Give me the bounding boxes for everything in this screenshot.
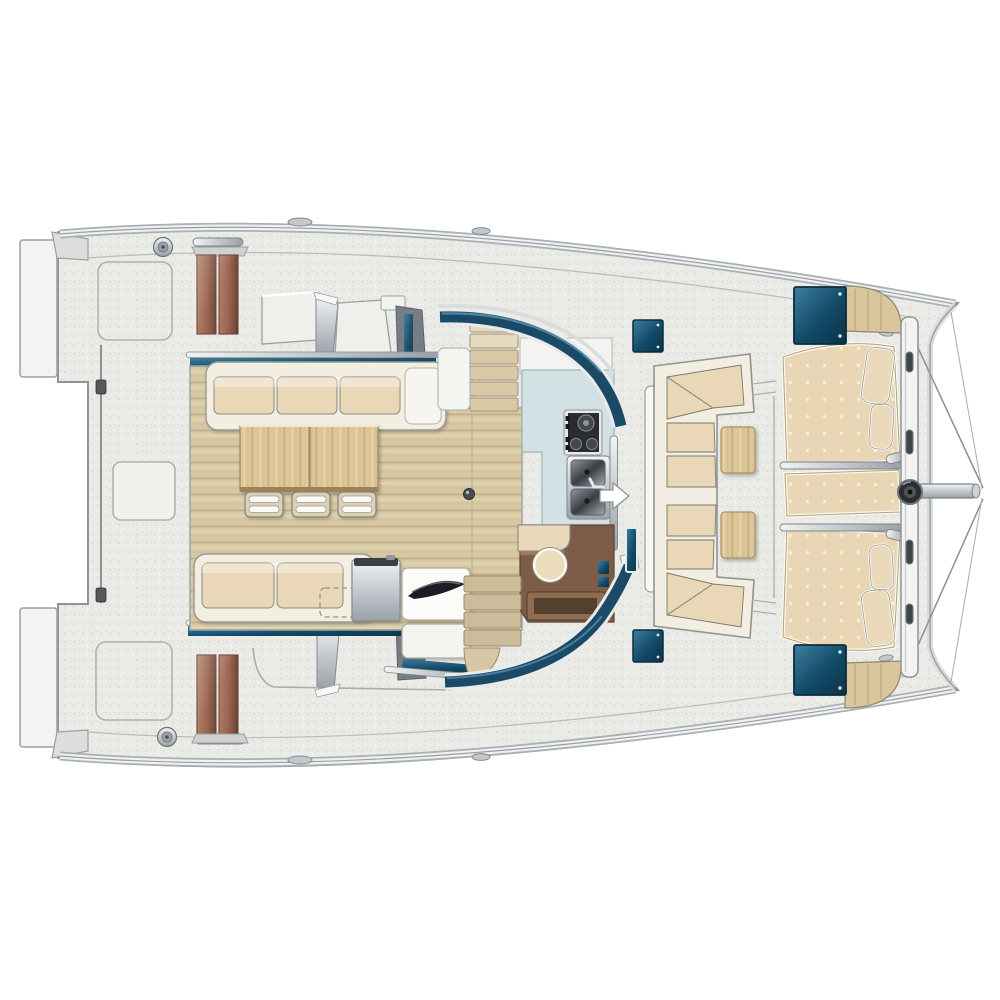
- nav-stool: [534, 549, 566, 581]
- deck-fitting-1: [288, 218, 312, 226]
- lifeline-fitting-top: [96, 380, 106, 394]
- coaming-panel-a: [262, 292, 318, 344]
- deck-hatch-large-bottom: [794, 645, 846, 695]
- deck-fitting-3: [288, 756, 312, 764]
- locker-navy-1: [598, 561, 609, 574]
- fridge-drawers: [402, 568, 470, 658]
- side-sofa: [194, 554, 374, 622]
- cleat-port: [193, 238, 243, 246]
- dinette-chairs: [245, 492, 376, 517]
- bowsprit: [916, 484, 977, 498]
- dinette-table: [240, 426, 378, 492]
- locker-navy-2: [598, 577, 609, 587]
- door-handle: [464, 489, 475, 500]
- stove: [564, 410, 602, 455]
- deck-fitting-4: [472, 754, 490, 761]
- cocktail-table-2: [721, 512, 755, 558]
- winch-port: [154, 238, 173, 257]
- deck-hatch-small-top: [633, 320, 663, 352]
- dinette-chair: [245, 492, 283, 517]
- deck-plan-canvas: [0, 0, 1000, 1000]
- deck-locker-seam-2: [113, 462, 175, 520]
- lifeline-fitting-bottom: [96, 588, 106, 602]
- swim-platform-port: [20, 240, 57, 377]
- dinette-chair: [338, 492, 376, 517]
- swim-platform-starboard: [20, 608, 57, 747]
- double-sink: [567, 456, 610, 519]
- deck-plan-page: [0, 0, 1000, 1000]
- nav-seat-back: [518, 525, 570, 551]
- sunpad-middle: [785, 470, 901, 516]
- forward-crossbeam-group: [898, 312, 983, 682]
- dinette-chair: [292, 492, 330, 517]
- galley-module-steel: [352, 555, 400, 621]
- deck-fitting-2: [472, 228, 490, 235]
- galley-upper-lockers: [438, 348, 470, 410]
- aft-settee: [206, 362, 446, 430]
- winch-starboard: [158, 728, 177, 747]
- deck-hatch-large-top: [794, 287, 846, 344]
- deck-hatch-small-bottom: [633, 630, 663, 662]
- cocktail-table-1: [721, 427, 755, 473]
- forestay-fitting: [898, 480, 922, 504]
